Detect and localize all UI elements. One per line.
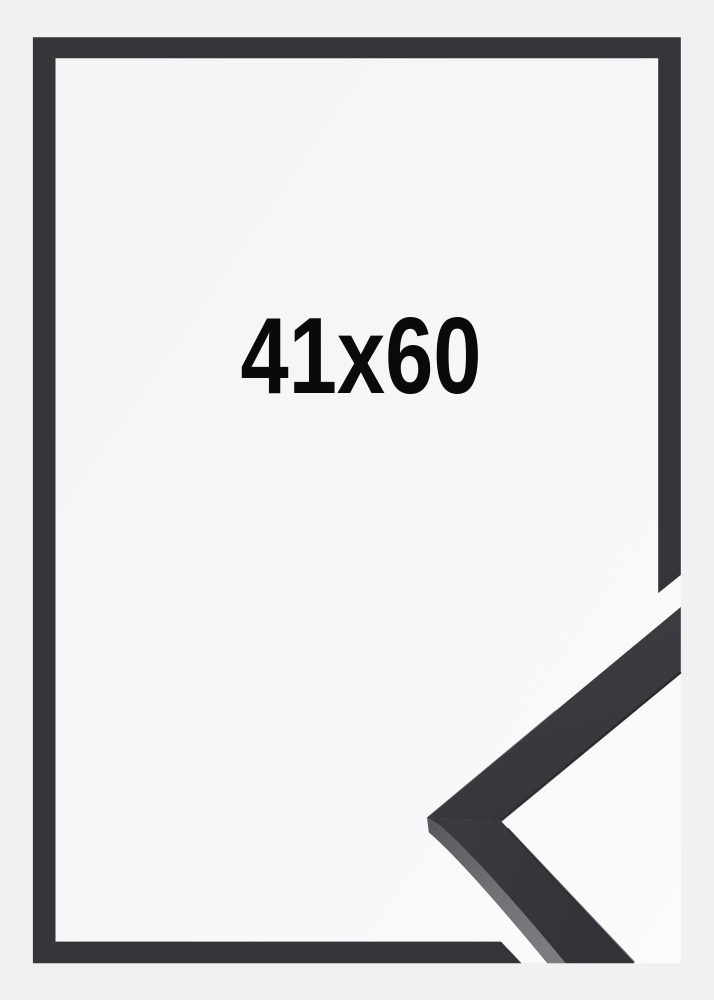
svg-text:41x60: 41x60 — [241, 295, 482, 417]
